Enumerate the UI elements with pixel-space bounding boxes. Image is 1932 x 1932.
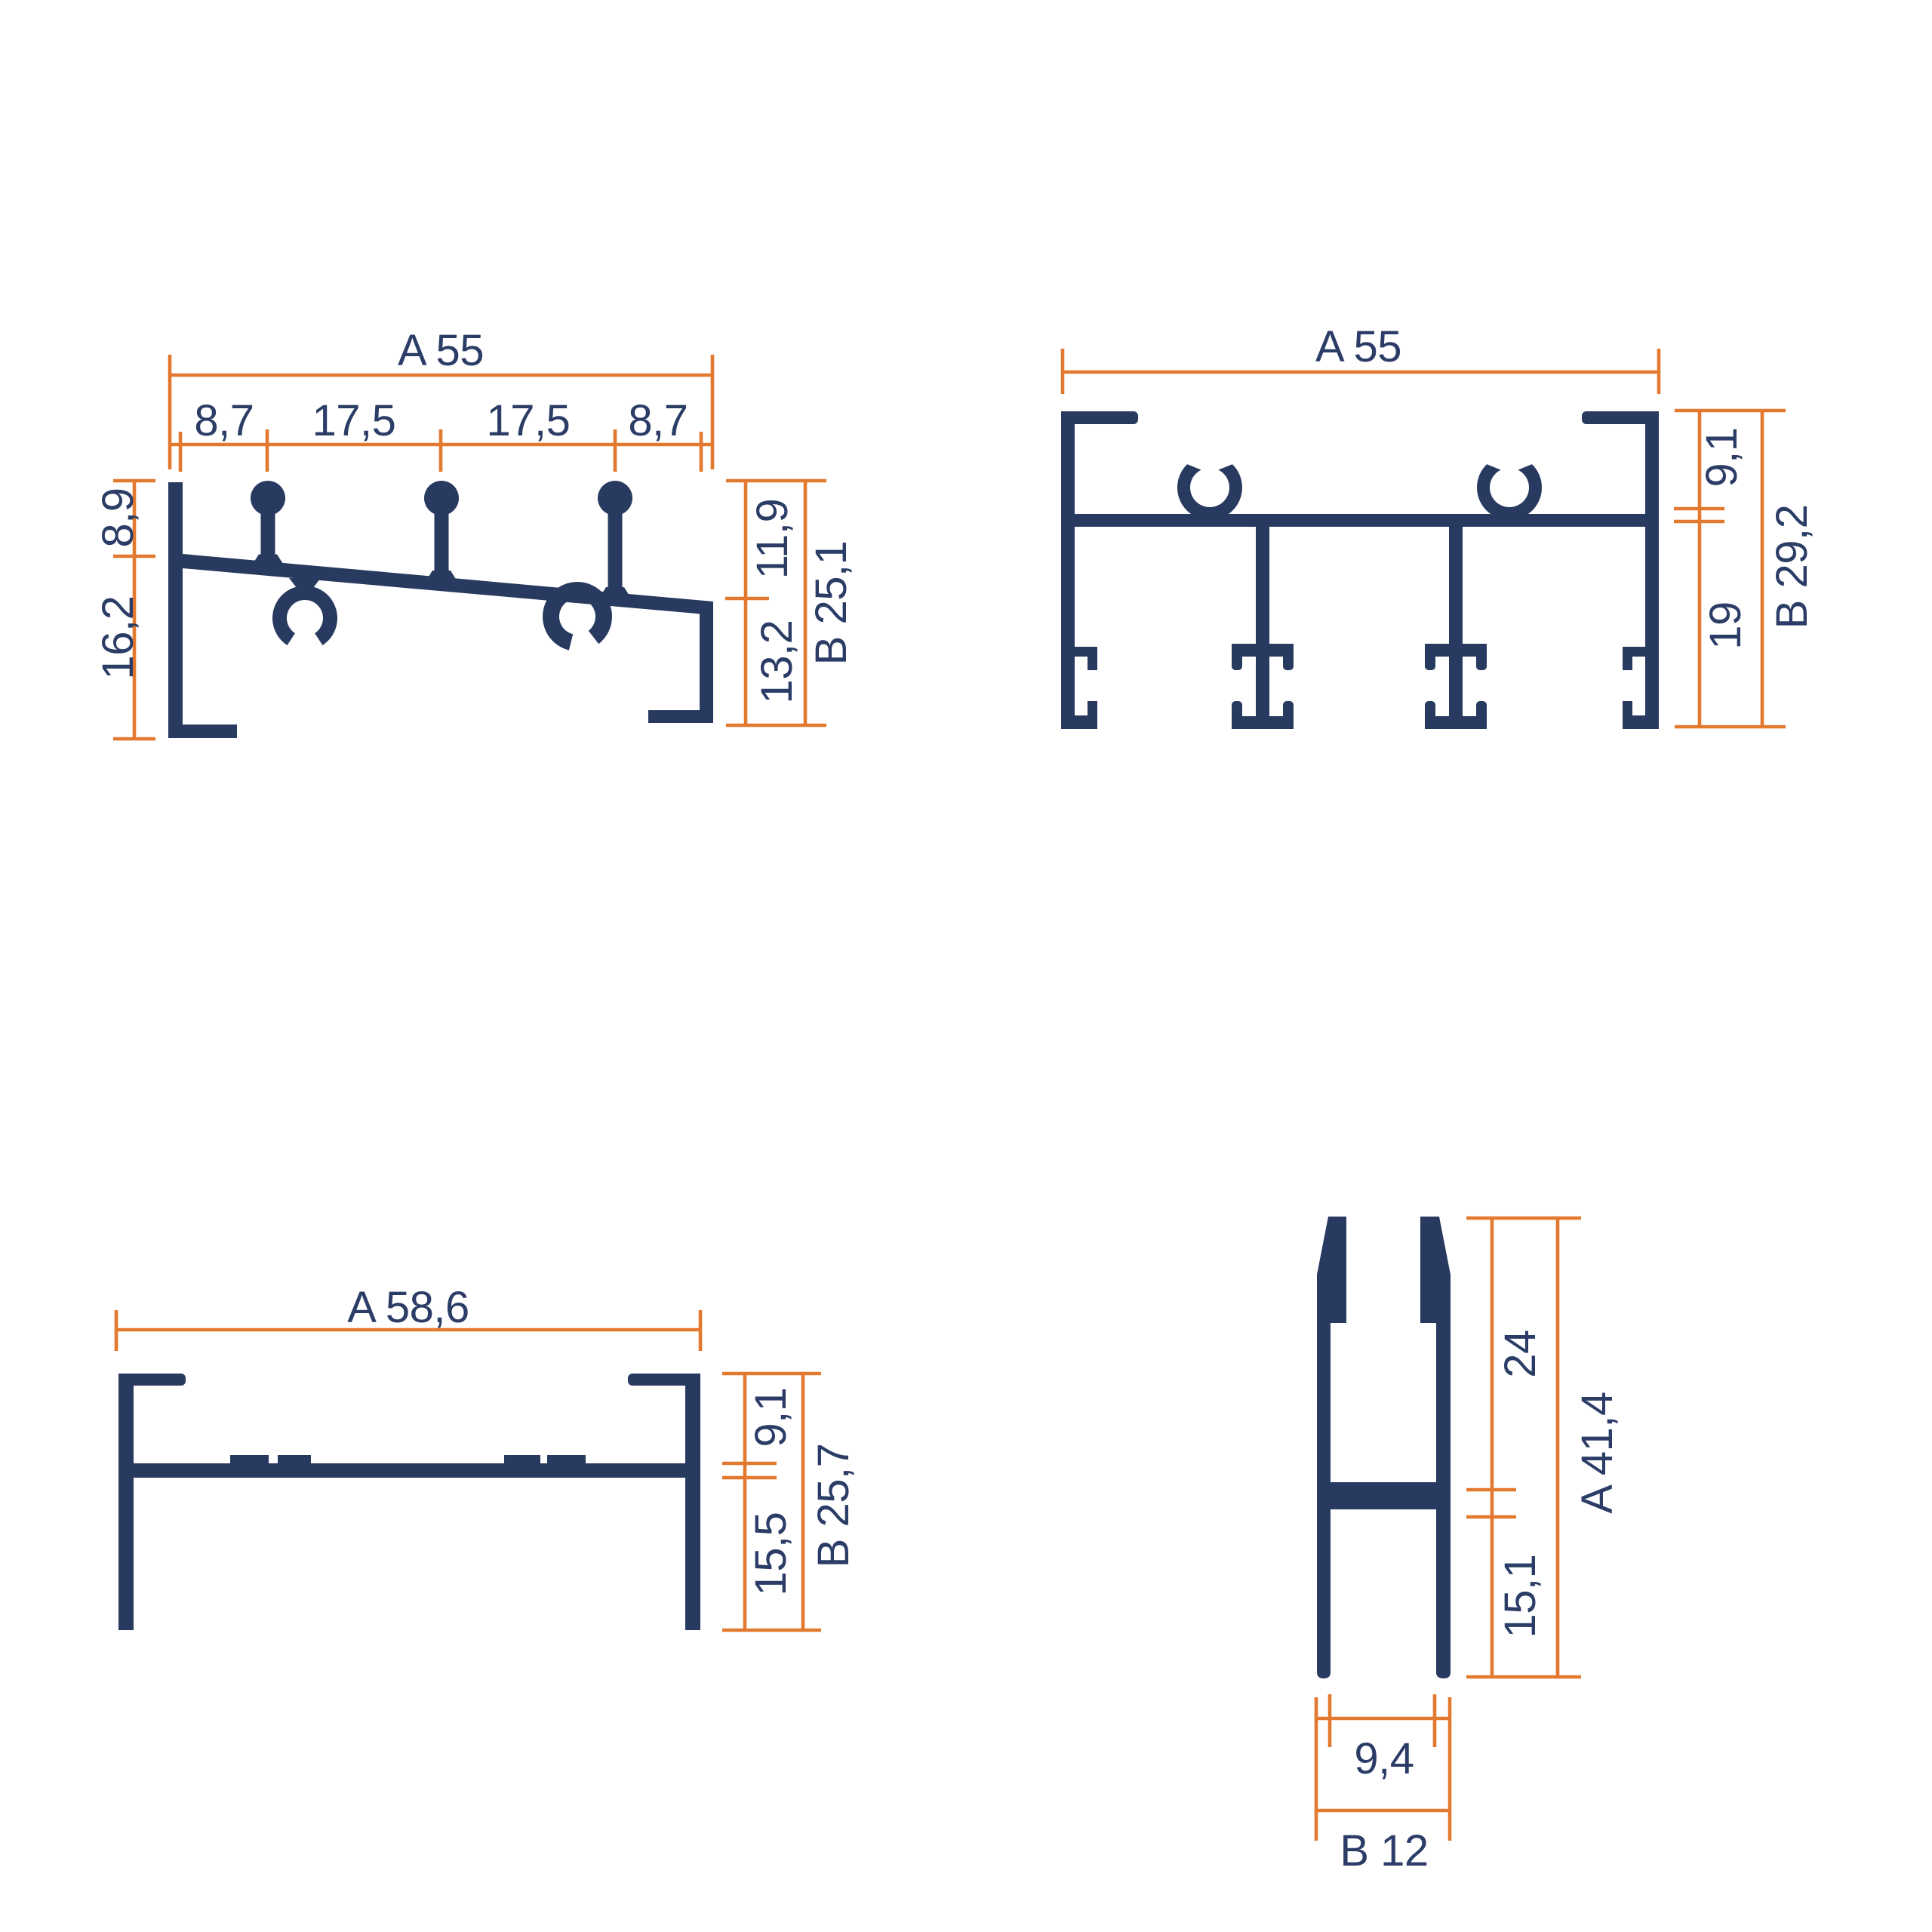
svg-text:A 41,4: A 41,4: [1573, 1392, 1622, 1513]
svg-text:13,2: 13,2: [752, 620, 801, 704]
svg-text:15,5: 15,5: [746, 1512, 795, 1596]
svg-text:B 25,1: B 25,1: [807, 541, 856, 666]
svg-text:A 55: A 55: [398, 326, 484, 375]
svg-text:B 12: B 12: [1340, 1826, 1428, 1875]
svg-text:24: 24: [1496, 1330, 1545, 1378]
svg-text:B 29,2: B 29,2: [1767, 505, 1817, 629]
svg-text:15,1: 15,1: [1496, 1555, 1545, 1638]
svg-text:A 58,6: A 58,6: [347, 1283, 469, 1332]
svg-text:8,7: 8,7: [628, 396, 688, 445]
svg-text:17,5: 17,5: [487, 396, 571, 445]
svg-text:A 55: A 55: [1315, 322, 1401, 371]
svg-text:17,5: 17,5: [312, 396, 396, 445]
svg-text:9,4: 9,4: [1354, 1734, 1414, 1783]
svg-text:16,2: 16,2: [94, 596, 143, 680]
svg-text:11,9: 11,9: [748, 499, 797, 580]
svg-text:8,9: 8,9: [94, 488, 143, 547]
svg-text:B 25,7: B 25,7: [809, 1444, 858, 1568]
svg-text:9,1: 9,1: [1697, 427, 1746, 487]
svg-text:19: 19: [1701, 601, 1750, 650]
svg-text:9,1: 9,1: [746, 1387, 795, 1447]
svg-text:8,7: 8,7: [194, 396, 254, 445]
